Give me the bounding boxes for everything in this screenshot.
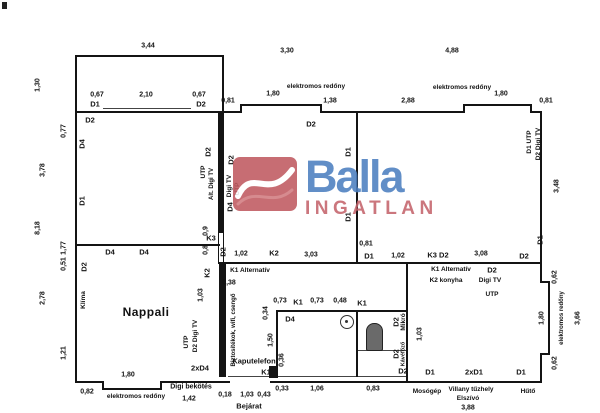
opening-tag: D2 — [196, 100, 206, 108]
scan-artifact — [2, 2, 7, 9]
annotation-label: elektromos redőny — [433, 85, 491, 92]
bottom-wall — [75, 381, 104, 383]
dimension-label: 0,34 — [263, 306, 270, 320]
opening-tag: K2 — [203, 268, 211, 278]
dimension-label: 1,30 — [35, 78, 42, 92]
interior-thick-wall — [218, 111, 224, 232]
dimension-label: 3,30 — [280, 48, 294, 55]
opening-tag: D4 — [78, 139, 86, 149]
brand-subtitle: INGATLAN — [305, 198, 438, 220]
dimension-label: 1,80 — [266, 91, 280, 98]
balla-ingatlan-watermark: Balla INGATLAN — [232, 156, 438, 220]
bathroom-divider — [356, 310, 358, 377]
top-window-recess — [240, 104, 322, 106]
annotation-label: Mosógép — [413, 389, 442, 396]
opening-tag: K3 — [206, 234, 216, 242]
annotation-label: D2 Digi TV — [193, 320, 200, 353]
middle-wall — [218, 262, 542, 264]
opening-tag: D1 — [425, 368, 435, 376]
opening-tag: D1 — [516, 368, 526, 376]
ceiling-lamp-icon — [340, 315, 354, 329]
annotation-label: Digi bekötés — [170, 384, 212, 391]
dimension-label: 0,36 — [279, 353, 286, 367]
dimension-label: 0,8 — [203, 245, 210, 255]
annotation-label: K2 konyha — [430, 278, 463, 285]
right-wall — [540, 355, 542, 383]
annotation-label: Kaputelefon — [232, 357, 275, 365]
dimension-label: 0,43 — [257, 392, 271, 399]
dimension-label: 3,66 — [575, 311, 582, 325]
dimension-label: 3,03 — [304, 252, 318, 259]
top-window-recess — [463, 104, 532, 106]
dimension-label: 0,77 — [61, 124, 68, 138]
toilet-icon — [366, 323, 383, 351]
dimension-label: 1,80 — [539, 311, 546, 325]
dimension-label: 2,10 — [139, 92, 153, 99]
opening-tag: D1 — [364, 252, 374, 260]
left-wall — [75, 111, 77, 383]
dimension-label: 3,48 — [554, 179, 561, 193]
annotation-label: D1 UTP — [527, 130, 534, 153]
dimension-label: 1,02 — [234, 251, 248, 258]
opening-tag: D2 — [204, 147, 212, 157]
annotation-label: UTP — [184, 336, 191, 349]
dimension-label: 1,21 — [61, 346, 68, 360]
dimension-label: 1,02 — [391, 253, 405, 260]
opening-tag: K1 — [293, 298, 303, 306]
annotation-label: Kávéfőző — [401, 342, 407, 366]
dimension-label: 0,83 — [366, 386, 380, 393]
opening-tag: D1 — [536, 235, 544, 245]
annotation-label: K1 Alternatív — [230, 268, 270, 275]
dimension-label: 0,67 — [192, 92, 206, 99]
dimension-label: 1,03 — [198, 288, 205, 302]
dimension-label: 1,03 — [240, 392, 254, 399]
dimension-label: 1,38 — [323, 98, 337, 105]
opening-tag: D4 — [105, 248, 115, 256]
opening-tag: D4 — [285, 315, 295, 323]
dimension-label: 0,82 — [80, 389, 94, 396]
opening-tag: D2 — [487, 266, 497, 274]
annotation-label: Hűtő — [521, 389, 536, 396]
opening-tag: D2 — [519, 252, 529, 260]
dimension-label: 1,03 — [417, 327, 424, 341]
dimension-label: 2,78 — [40, 291, 47, 305]
right-window-recess — [548, 283, 550, 355]
annotation-label: Digi TV — [479, 278, 501, 285]
annotation-label: D2 Digi TV — [536, 128, 543, 161]
opening-tag: D2 — [398, 367, 408, 375]
annotation-label: Alt. Digi TV — [209, 168, 215, 200]
opening-tag: D1 — [90, 100, 100, 108]
dimension-label: 2,88 — [401, 98, 415, 105]
floor-plan-image: 3,443,304,88elektromos redőny1,801,382,8… — [0, 0, 600, 413]
dimension-label: 0,81 — [221, 98, 235, 105]
brand-name: Balla — [305, 156, 438, 197]
annotation-label: elektromos redőny — [287, 84, 345, 91]
annotation-label: Bejárat — [236, 402, 261, 410]
bathroom-top-wall — [276, 310, 407, 312]
dimension-label: 0,62 — [552, 356, 559, 370]
opening-tag: D4 — [139, 248, 149, 256]
annotation-label: elektromos redőny — [559, 291, 565, 345]
dimension-label: 0,73 — [273, 298, 287, 305]
room-name-label: Nappali — [123, 306, 170, 318]
opening-tag: D2 — [85, 116, 95, 124]
dimension-label: 1,80 — [494, 91, 508, 98]
opening-tag: K3 D2 — [427, 251, 448, 259]
opening-tag: D1 — [78, 196, 86, 206]
entry-door-post — [269, 366, 278, 378]
dimension-label: 0,62 — [552, 270, 559, 284]
dimension-label: 0,81 — [539, 98, 553, 105]
balcony-door-line — [103, 108, 191, 109]
dimension-label: 1,06 — [310, 386, 324, 393]
dimension-label: 8,18 — [35, 221, 42, 235]
nappali-top-wall — [75, 244, 220, 246]
dimension-label: 1,77 — [61, 241, 68, 255]
top-wall — [75, 111, 242, 113]
dimension-label: 1,50 — [268, 333, 275, 347]
balla-logo-icon — [232, 156, 298, 217]
annotation-label: Mikró — [401, 313, 408, 330]
dimension-label: 0,73 — [310, 298, 324, 305]
dimension-label: 0,38 — [222, 280, 236, 287]
annotation-label: Elszívó — [457, 396, 479, 403]
top-wall — [320, 111, 465, 113]
dimension-label: 0,33 — [275, 386, 289, 393]
dimension-label: 1,80 — [121, 372, 135, 379]
dimension-label: 3,88 — [461, 405, 475, 412]
opening-tag: D2 — [306, 120, 316, 128]
annotation-label: UTP — [201, 166, 208, 179]
opening-tag: D2 — [392, 349, 400, 359]
dimension-label: 0,51 — [61, 257, 68, 271]
annotation-label: Klíma — [81, 291, 88, 309]
dimension-label: 4,88 — [445, 48, 459, 55]
annotation-label: Villany tűzhely — [448, 387, 493, 394]
opening-tag: D2 — [219, 247, 227, 257]
dimension-label: 3,44 — [141, 43, 155, 50]
dimension-label: 0,48 — [333, 298, 347, 305]
opening-tag: K2 — [269, 249, 279, 257]
bathroom-bottom-wall — [276, 376, 407, 377]
opening-tag: 2xD1 — [465, 368, 483, 376]
opening-tag: D2 — [80, 262, 88, 272]
dimension-label: 0,67 — [90, 92, 104, 99]
annotation-label: elektromos redőny — [107, 394, 165, 401]
dimension-label: 0,18 — [218, 392, 232, 399]
dimension-label: 0,81 — [359, 241, 373, 248]
opening-tag: K1 — [357, 299, 367, 307]
dimension-label: 3,78 — [40, 163, 47, 177]
dimension-label: 1,42 — [182, 396, 196, 403]
opening-tag: 2xD4 — [191, 364, 209, 372]
bottom-window-recess — [102, 388, 162, 390]
annotation-label: K1 Alternatív — [431, 267, 471, 274]
annotation-label: UTP — [486, 292, 499, 299]
opening-tag: D2 — [392, 317, 400, 327]
dimension-label: 3,08 — [474, 251, 488, 258]
